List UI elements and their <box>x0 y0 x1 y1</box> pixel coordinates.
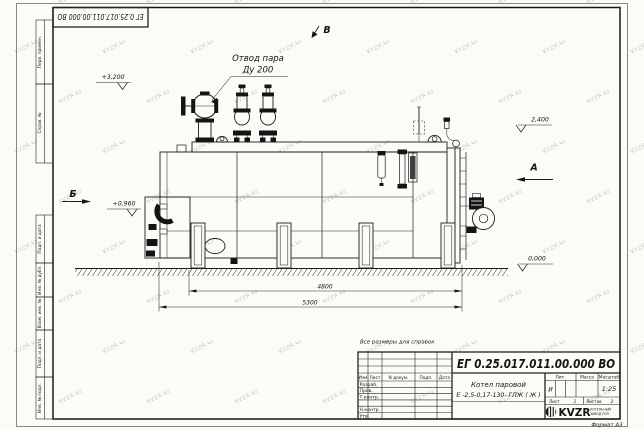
drawing-sheet: KVZR.kzKVZR.kzKVZR.kzKVZR.kzKVZR.kzKVZR.… <box>0 0 644 430</box>
col-n-dokum: N докум. <box>389 375 409 381</box>
drain-fitting <box>231 258 238 264</box>
dim-support-span: 4800 <box>317 284 332 291</box>
stamp-podp-data-1: Подп. и дата <box>37 224 43 254</box>
stamp-perv-primen: Перв. примен. <box>37 36 43 68</box>
ground-hatch <box>75 269 508 277</box>
list-value: 1 <box>574 399 577 405</box>
callout-line1: Отвод пара <box>232 54 284 64</box>
row-n-kontr: Н.контр. <box>360 407 381 413</box>
front-bracket <box>177 145 186 152</box>
boiler-side-view <box>75 85 508 277</box>
listov-value: 2 <box>611 399 614 405</box>
elevation-marks: +3,200 +0,960 2,400 0,000 <box>96 74 553 271</box>
massa-header: Масса <box>580 375 594 381</box>
kvzr-logo-sub1: КОТЕЛЬНЫЙ <box>590 407 612 412</box>
deck-fittings <box>414 107 460 147</box>
callout-line2: Ду 200 <box>242 66 274 76</box>
stamp-inv-podl: Инв. № подл. <box>37 383 43 413</box>
product-name-line2: Е -2,5-0,17-130- ГЛЖ ( Ж ) <box>456 392 540 399</box>
stamp-inv-dubl: Инв. № дубл. <box>37 265 43 294</box>
product-name-line1: Котел паровой <box>471 381 526 389</box>
kvzr-logo-sub2: ЗАВОД РЭП <box>590 412 610 416</box>
title-doc-number: ЕГ 0.25.017.011.00.000 ВО <box>457 357 615 371</box>
stamp-sprav-no: Справ. № <box>37 112 43 133</box>
elev-burner: +0,960 <box>113 201 136 208</box>
format-label: Формат А3 <box>591 423 623 429</box>
burner-assembly <box>145 197 190 258</box>
kvzr-logo: KVZR КОТЕЛЬНЫЙ ЗАВОД РЭП <box>546 407 612 420</box>
title-block: Изм Лист N докум. Подп. Дата Разраб. Про… <box>358 352 620 419</box>
dome-fitting <box>217 137 228 143</box>
water-level-gauges <box>378 150 418 189</box>
col-izm: Изм <box>359 375 368 381</box>
elev-deck: 2,400 <box>531 117 549 124</box>
top-doc-number: ЕГ 0.25.017.011.00.000 ВО <box>58 12 144 21</box>
safety-valve-2 <box>259 85 277 143</box>
elev-top: +3,200 <box>102 74 125 81</box>
safety-valve-1 <box>233 85 251 143</box>
view-markers: Б В А <box>62 25 553 204</box>
scale-value: 1:25 <box>602 385 617 393</box>
margin-stamps: Перв. примен. Справ. № Подп. и дата Инв.… <box>36 20 53 419</box>
view-a-label: А <box>529 163 537 174</box>
lit-header: Лит. <box>556 375 566 381</box>
blower-unit <box>460 194 495 234</box>
lit-value: И <box>548 387 553 394</box>
masshtab-header: Масштаб <box>599 375 620 381</box>
manhole <box>205 239 225 254</box>
steam-outlet-callout: Отвод пара Ду 200 <box>211 54 288 104</box>
elev-ground: 0,000 <box>528 256 546 263</box>
boiler-general-view-drawing: ЕГ 0.25.017.011.00.000 ВО Перв. примен. … <box>0 0 644 430</box>
row-utv: Утв. <box>360 413 370 419</box>
dim-overall-length: 5300 <box>302 300 317 307</box>
stamp-vzam-inv: Взам. инв. № <box>37 298 43 328</box>
boiler-top-deck <box>192 142 447 152</box>
row-prov: Пров. <box>360 388 373 394</box>
col-podp: Подп. <box>419 375 432 381</box>
row-razrab: Разраб. <box>360 382 378 388</box>
col-data: Дата <box>439 375 450 381</box>
stamp-podp-data-2: Подп. и дата <box>37 339 43 369</box>
listov-label: Листов <box>586 399 602 404</box>
row-t-kontr: Т.контр. <box>359 394 380 400</box>
reference-note: Все размеры для справок <box>360 340 435 346</box>
view-b-label: Б <box>69 189 76 200</box>
valve-handwheel <box>181 97 186 116</box>
view-v-label: В <box>323 25 330 36</box>
col-list: Лист <box>370 375 381 381</box>
kvzr-logo-text: KVZR <box>559 407 591 419</box>
list-label: Лист <box>549 399 560 404</box>
